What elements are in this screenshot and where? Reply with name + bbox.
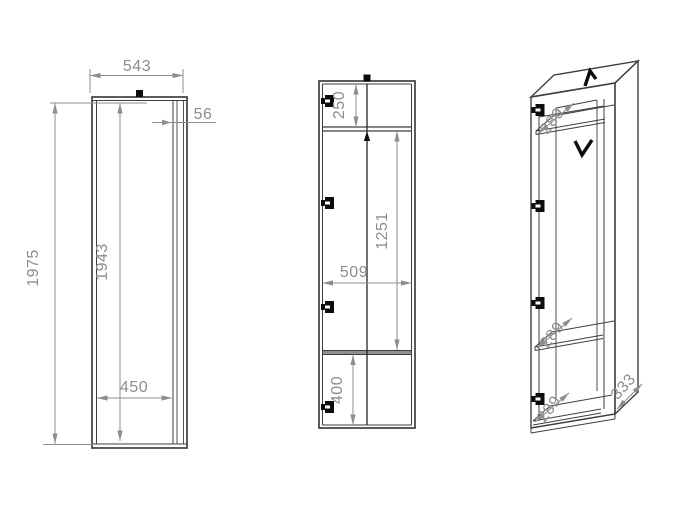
dim-front-height-outer: 1975 (25, 249, 42, 287)
dim-iso-side-depth: 333 (608, 371, 640, 403)
dim-section-main: 1251 (374, 212, 391, 250)
wall-bracket-icon (585, 71, 596, 86)
technical-drawing-canvas: 543 56 1975 1943 450 (0, 0, 680, 510)
section-view: 250 1251 509 400 (319, 75, 415, 429)
dim-front-width: 543 (123, 58, 151, 75)
hinge-icon (532, 104, 545, 116)
wardrobe-dimension-drawing: 543 56 1975 1943 450 (0, 0, 680, 510)
dim-front-width-inner: 450 (120, 379, 148, 396)
hanging-rail-hook-icon (575, 140, 592, 155)
hinge-icon (532, 200, 545, 212)
hinge-icon (532, 297, 545, 309)
centerline-arrow-icon (364, 132, 370, 142)
isometric-view: 289 289 289 333 (531, 61, 642, 433)
dim-front-height-inner: 1943 (94, 243, 111, 281)
dim-section-bottom: 400 (329, 376, 346, 404)
wall-bracket-icon (364, 75, 371, 82)
dim-iso-middle-shelf-depth: 289 (537, 319, 568, 352)
dim-section-width: 509 (340, 264, 368, 281)
dim-front-edge-strip: 56 (194, 106, 213, 123)
dim-section-top: 250 (331, 91, 348, 119)
front-view: 543 56 1975 1943 450 (25, 58, 216, 448)
wall-bracket-icon (136, 90, 143, 97)
